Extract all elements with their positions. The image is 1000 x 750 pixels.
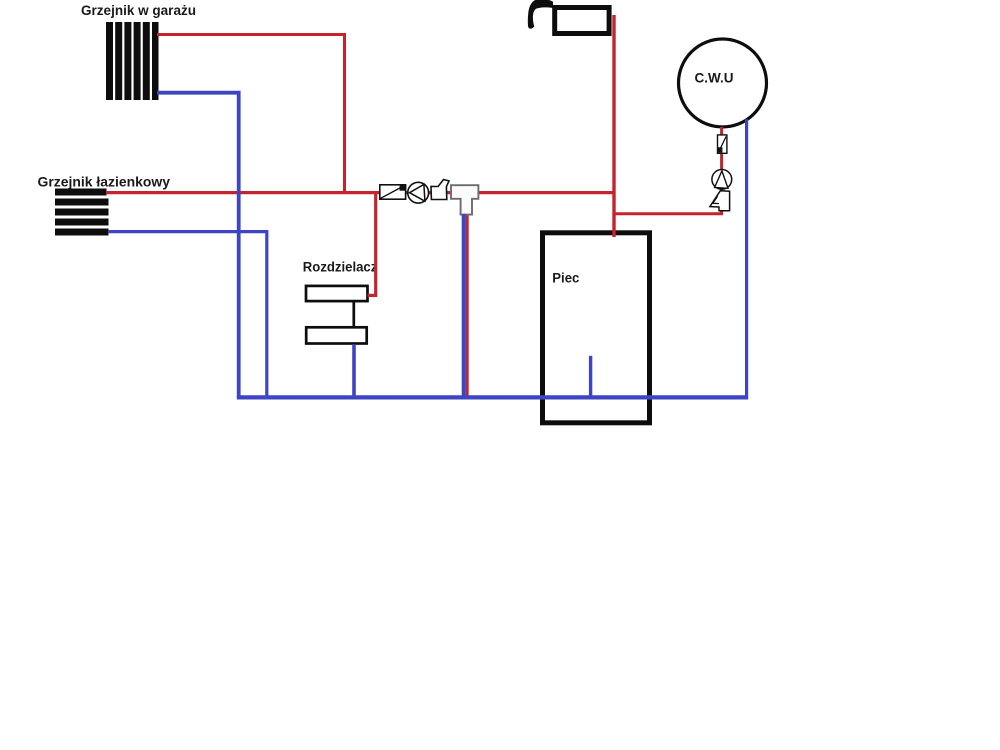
svg-text:Grzejnik w garażu: Grzejnik w garażu — [81, 2, 196, 18]
svg-text:C.W.U: C.W.U — [695, 70, 734, 86]
svg-text:Piec: Piec — [552, 270, 579, 285]
svg-text:Rozdzielacz: Rozdzielacz — [303, 260, 378, 275]
svg-text:Grzejnik łazienkowy: Grzejnik łazienkowy — [38, 173, 171, 189]
